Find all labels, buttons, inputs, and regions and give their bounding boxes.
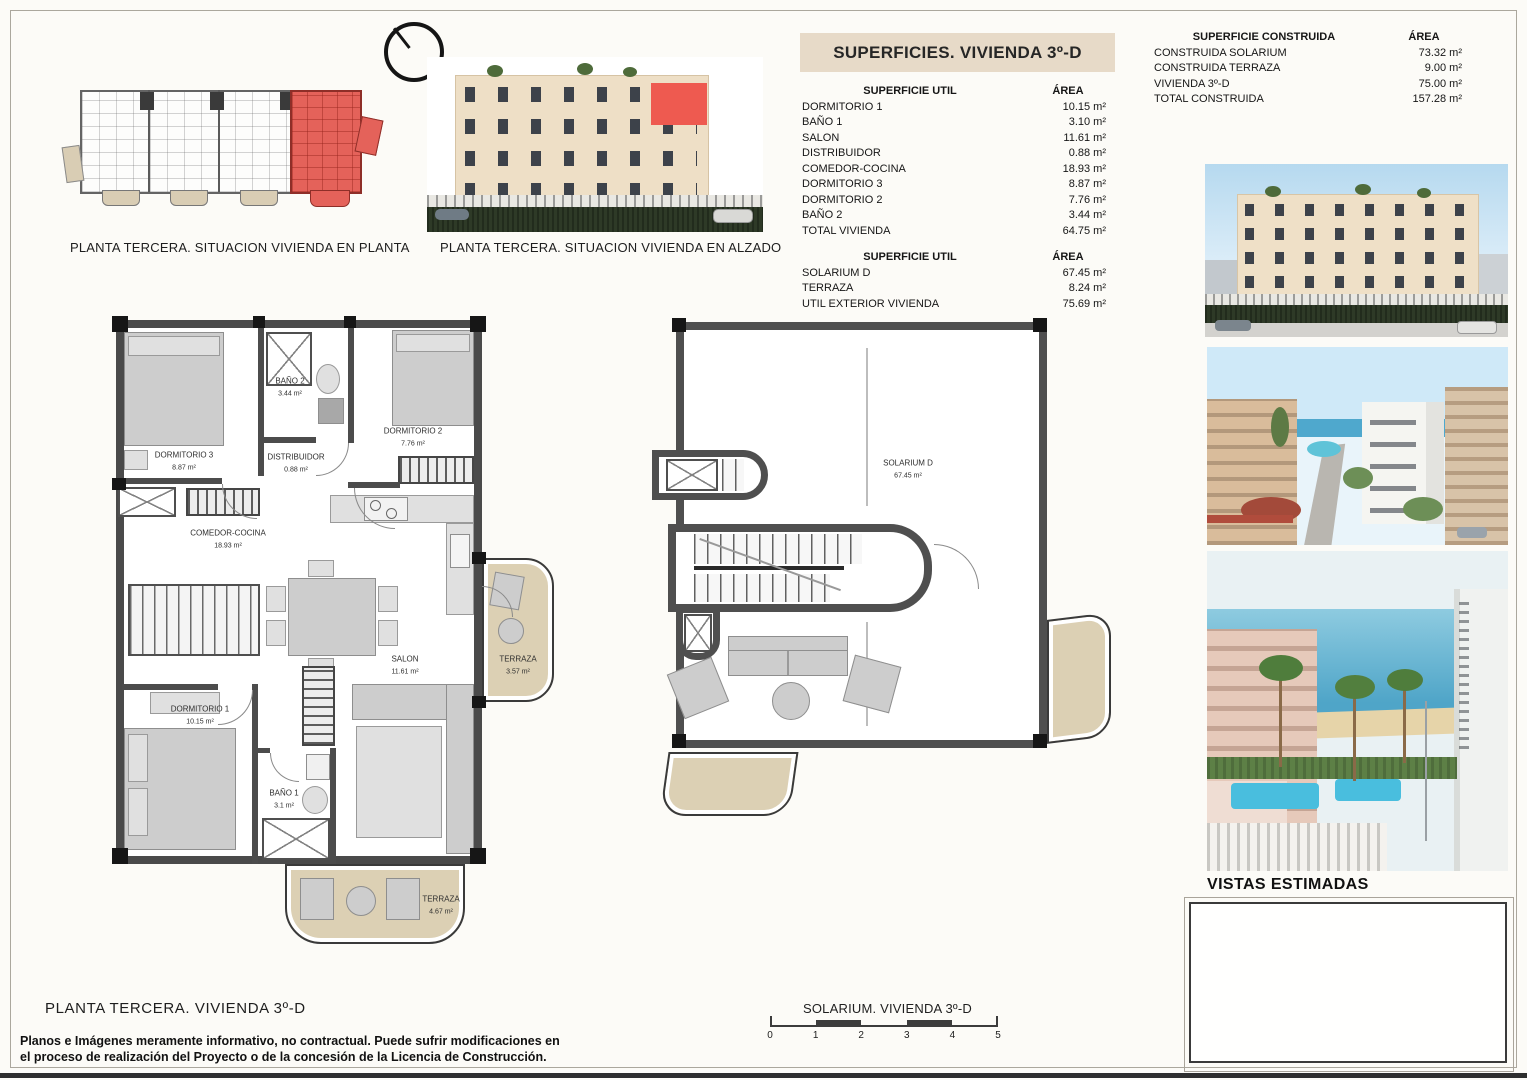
wall-corner (112, 848, 128, 864)
solarium-caption: SOLARIUM. VIVIENDA 3º-D (803, 1001, 972, 1016)
partition-wall (258, 328, 264, 476)
scale-segment (816, 1020, 862, 1026)
table-row: DORMITORIO 110.15 m² (798, 100, 1114, 116)
white-building-slits (1459, 599, 1469, 749)
roof-ridge-line (866, 348, 868, 506)
row-label: SOLARIUM D (798, 266, 1014, 282)
room-name: TERRAZA (422, 895, 459, 904)
wall-corner (253, 316, 265, 328)
key-plan-stair-core (140, 92, 154, 110)
room-label-solarium: SOLARIUM D67.45 m² (883, 458, 933, 483)
wall-corner (112, 316, 128, 332)
row-area: 75.00 m² (1370, 77, 1470, 93)
room-name: BAÑO 2 (275, 377, 304, 386)
col-label: SUPERFICIE CONSTRUIDA (1150, 30, 1378, 46)
room-label-bano-2: BAÑO 23.44 m² (275, 376, 304, 401)
street-lamp (1425, 701, 1427, 841)
room-label-dormitorio-1: DORMITORIO 110.15 m² (171, 704, 230, 729)
render-window-row (1245, 228, 1469, 240)
room-name: DORMITORIO 1 (171, 705, 230, 714)
wardrobe (398, 456, 474, 484)
scale-tick-label: 1 (806, 1030, 826, 1041)
kitchen-sink (450, 534, 470, 568)
toilet (302, 786, 328, 814)
shower (262, 818, 330, 860)
wall-corner (344, 316, 356, 328)
room-name: SOLARIUM D (883, 459, 933, 468)
row-label: DISTRIBUIDOR (798, 146, 1014, 162)
wall-corner (672, 734, 686, 748)
wall-corner (112, 478, 126, 490)
room-label-dormitorio-2: DORMITORIO 27.76 m² (384, 426, 443, 451)
roof-plant (1355, 184, 1371, 195)
room-area: 3.1 m² (274, 803, 294, 810)
elevation-window-row (465, 151, 697, 166)
elevation-caption: PLANTA TERCERA. SITUACION VIVIENDA EN AL… (440, 240, 781, 255)
elevation-red-highlight (651, 83, 707, 125)
row-label: BAÑO 1 (798, 115, 1014, 131)
car (1457, 321, 1497, 334)
table-row: TOTAL CONSTRUIDA157.28 m² (1150, 92, 1470, 108)
bathroom-sink (306, 754, 330, 780)
row-area: 11.61 m² (1014, 131, 1114, 147)
wall-corner (672, 318, 686, 332)
elevation-car (713, 209, 753, 223)
elevator-shaft (118, 487, 176, 517)
partition-wall (122, 684, 218, 690)
stair-treads (722, 459, 744, 491)
util-table-header: SUPERFICIE UTIL ÁREA (798, 84, 1114, 100)
render-window-row (1245, 252, 1469, 264)
pool (1231, 783, 1319, 809)
row-area: 18.93 m² (1014, 162, 1114, 178)
roof-plant (1417, 188, 1431, 198)
rug (356, 726, 442, 838)
row-area: 67.45 m² (1014, 266, 1114, 282)
elevation-roof-plant (577, 63, 593, 75)
scale-tick-label: 4 (942, 1030, 962, 1041)
elevator-shaft (684, 614, 712, 652)
render-window-row (1245, 276, 1469, 288)
table-row: SALON11.61 m² (798, 131, 1114, 147)
table-row: CONSTRUIDA TERRAZA9.00 m² (1150, 61, 1470, 77)
photo-building-render (1205, 164, 1508, 337)
trees (1403, 497, 1443, 521)
photo-aerial-view (1207, 347, 1508, 545)
elevation-photo (427, 57, 763, 232)
sheet-bottom-rule (0, 1073, 1527, 1078)
key-plan-balcony (240, 190, 278, 206)
red-wall (1207, 515, 1293, 523)
elevation-car (435, 209, 469, 220)
row-label: TOTAL VIVIENDA (798, 224, 1014, 240)
row-label: COMEDOR-COCINA (798, 162, 1014, 178)
room-name: DORMITORIO 3 (155, 451, 214, 460)
construida-table: SUPERFICIE CONSTRUIDA ÁREA CONSTRUIDA SO… (1150, 30, 1470, 108)
construida-table-header: SUPERFICIE CONSTRUIDA ÁREA (1150, 30, 1470, 46)
key-plan-caption: PLANTA TERCERA. SITUACION VIVIENDA EN PL… (70, 240, 410, 255)
room-area: 10.15 m² (186, 719, 214, 726)
table-row: DORMITORIO 38.87 m² (798, 177, 1114, 193)
room-label-salon: SALON11.61 m² (391, 654, 418, 679)
util-table: SUPERFICIE UTIL ÁREA DORMITORIO 110.15 m… (798, 84, 1114, 239)
elevation-roof-plant (487, 65, 503, 77)
row-label: TOTAL CONSTRUIDA (1150, 92, 1370, 108)
palm-trunk (1403, 683, 1406, 763)
room-label-dormitorio-3: DORMITORIO 38.87 m² (155, 450, 214, 475)
photo-beach-view (1207, 551, 1508, 871)
disclaimer-line2: el proceso de realización del Proyecto o… (20, 1050, 547, 1064)
row-area: 75.69 m² (1014, 297, 1114, 313)
sofa (446, 684, 474, 854)
table-row: VIVIENDA 3º-D75.00 m² (1150, 77, 1470, 93)
sofa-seam (787, 651, 789, 675)
key-plan-balcony (170, 190, 208, 206)
row-label: VIVIENDA 3º-D (1150, 77, 1370, 93)
room-label-terraza-side: TERRAZA3.57 m² (499, 654, 536, 679)
scale-tick-label: 0 (760, 1030, 780, 1041)
row-area: 8.24 m² (1014, 281, 1114, 297)
round-table (772, 682, 810, 720)
terrace-table (346, 886, 376, 916)
solarium-terrace-right (1047, 612, 1111, 744)
render-window-row (1245, 204, 1469, 216)
partition-wall (122, 478, 222, 484)
white-building-windows (1370, 413, 1416, 513)
table-row: DORMITORIO 27.76 m² (798, 193, 1114, 209)
dining-chair (308, 560, 334, 577)
table-row: UTIL EXTERIOR VIVIENDA75.69 m² (798, 297, 1114, 313)
staircase (128, 584, 260, 656)
bed-pillow (128, 734, 148, 782)
room-name: DORMITORIO 2 (384, 427, 443, 436)
palm-crown (1259, 655, 1303, 681)
key-plan-red-unit (290, 90, 362, 194)
room-label-terraza-bottom: TERRAZA4.67 m² (422, 894, 459, 919)
disclaimer-line1: Planos e Imágenes meramente informativo,… (20, 1034, 560, 1048)
dining-table (288, 578, 376, 656)
pool (1307, 441, 1341, 457)
stair-landing-edge (694, 566, 844, 570)
row-area: 3.10 m² (1014, 115, 1114, 131)
col-area: ÁREA (1022, 84, 1114, 100)
row-area: 0.88 m² (1014, 146, 1114, 162)
room-name: DISTRIBUIDOR (267, 453, 324, 462)
room-label-distribuidor: DISTRIBUIDOR0.88 m² (267, 452, 324, 477)
scale-baseline (770, 1025, 998, 1027)
row-area: 7.76 m² (1014, 193, 1114, 209)
tan-building-right (1445, 387, 1508, 545)
row-label: UTIL EXTERIOR VIVIENDA (798, 297, 1014, 313)
bed-pillow (396, 334, 470, 352)
vistas-title: VISTAS ESTIMADAS (1207, 876, 1369, 894)
row-area: 64.75 m² (1014, 224, 1114, 240)
table-row: CONSTRUIDA SOLARIUM73.32 m² (1150, 46, 1470, 62)
row-label: BAÑO 2 (798, 208, 1014, 224)
table-row: SOLARIUM D67.45 m² (798, 266, 1114, 282)
elevation-roof-plant (623, 67, 637, 77)
stair-treads (694, 534, 862, 564)
room-name: SALON (391, 655, 418, 664)
partition-wall (330, 748, 336, 864)
room-label-comedor-cocina: COMEDOR-COCINA18.93 m² (190, 528, 266, 553)
partition-wall (252, 684, 258, 864)
wall-corner (472, 696, 486, 708)
scale-bar: 0 1 2 3 4 5 (770, 1016, 998, 1050)
nightstand (124, 450, 148, 470)
row-label: DORMITORIO 3 (798, 177, 1014, 193)
dining-chair (378, 586, 398, 612)
row-area: 9.00 m² (1370, 61, 1470, 77)
bathroom-sink (318, 398, 344, 424)
terrace-chair (300, 878, 334, 920)
roof-plant (1265, 186, 1281, 197)
partition-wall (258, 437, 316, 443)
col-label: SUPERFICIE UTIL (798, 250, 1022, 266)
scale-tick-label: 5 (988, 1030, 1008, 1041)
table-row: DISTRIBUIDOR0.88 m² (798, 146, 1114, 162)
col-label: SUPERFICIE UTIL (798, 84, 1022, 100)
room-area: 8.87 m² (172, 465, 196, 472)
trees (1343, 467, 1373, 489)
room-area: 3.44 m² (278, 391, 302, 398)
row-area: 8.87 m² (1014, 177, 1114, 193)
wardrobe (302, 666, 335, 746)
col-area: ÁREA (1378, 30, 1470, 46)
room-name: BAÑO 1 (269, 789, 298, 798)
room-area: 7.76 m² (401, 441, 425, 448)
room-name: COMEDOR-COCINA (190, 529, 266, 538)
wall-corner (1033, 318, 1047, 332)
notes-box-inner (1189, 902, 1507, 1063)
room-area: 0.88 m² (284, 467, 308, 474)
palm-trunk (1353, 691, 1356, 781)
palm-crown (1387, 669, 1423, 691)
room-name: TERRAZA (499, 655, 536, 664)
key-plan-balcony-red (310, 190, 350, 207)
col-area: ÁREA (1022, 250, 1114, 266)
hedge (1207, 757, 1457, 779)
superficies-title-band: SUPERFICIES. VIVIENDA 3º-D (800, 33, 1115, 72)
palm-tree (1271, 407, 1289, 447)
bed-pillow (128, 788, 148, 836)
scale-tick-label: 3 (897, 1030, 917, 1041)
terrace-chair (386, 878, 420, 920)
white-fence (1207, 823, 1387, 871)
room-area: 18.93 m² (214, 543, 242, 550)
row-area: 10.15 m² (1014, 100, 1114, 116)
row-label: CONSTRUIDA TERRAZA (1150, 61, 1370, 77)
room-area: 4.67 m² (429, 909, 453, 916)
row-label: DORMITORIO 2 (798, 193, 1014, 209)
pool (1335, 779, 1401, 801)
solarium-terrace-bottom (660, 752, 799, 816)
row-label: SALON (798, 131, 1014, 147)
palm-trunk (1279, 671, 1282, 767)
dining-chair (378, 620, 398, 646)
row-label: CONSTRUIDA SOLARIUM (1150, 46, 1370, 62)
dining-chair (266, 586, 286, 612)
room-area: 67.45 m² (894, 473, 922, 480)
row-area: 157.28 m² (1370, 92, 1470, 108)
room-area: 3.57 m² (506, 669, 530, 676)
key-plan-balcony (102, 190, 140, 206)
car (1457, 527, 1487, 538)
table-row: BAÑO 23.44 m² (798, 208, 1114, 224)
table-row: TERRAZA8.24 m² (798, 281, 1114, 297)
row-area: 3.44 m² (1014, 208, 1114, 224)
wall-corner (472, 552, 486, 564)
palm-crown (1335, 675, 1375, 699)
terrace-table (498, 618, 524, 644)
scale-end-tick (996, 1016, 998, 1027)
floor-plan-caption: PLANTA TERCERA. VIVIENDA 3º-D (45, 1000, 306, 1017)
dining-chair (266, 620, 286, 646)
scale-end-tick (770, 1016, 772, 1027)
room-label-bano-1: BAÑO 13.1 m² (269, 788, 298, 813)
bed-pillow (128, 336, 220, 356)
table-row: COMEDOR-COCINA18.93 m² (798, 162, 1114, 178)
scale-tick-label: 2 (851, 1030, 871, 1041)
wall-corner (470, 316, 486, 332)
exterior-table-header: SUPERFICIE UTIL ÁREA (798, 250, 1114, 266)
row-label: TERRAZA (798, 281, 1014, 297)
key-plan (58, 78, 403, 228)
partition-wall (258, 748, 270, 753)
table-row: TOTAL VIVIENDA64.75 m² (798, 224, 1114, 240)
elevator-shaft (666, 459, 718, 491)
wall-corner (1033, 734, 1047, 748)
row-area: 73.32 m² (1370, 46, 1470, 62)
toilet (316, 364, 340, 394)
wall-corner (470, 848, 486, 864)
car (1215, 320, 1251, 331)
exterior-table: SUPERFICIE UTIL ÁREA SOLARIUM D67.45 m² … (798, 250, 1114, 312)
scale-segment (907, 1020, 953, 1026)
room-area: 11.61 m² (391, 669, 418, 676)
row-label: DORMITORIO 1 (798, 100, 1014, 116)
table-row: BAÑO 13.10 m² (798, 115, 1114, 131)
partition-wall (348, 328, 354, 443)
key-plan-stair-core (210, 92, 224, 110)
